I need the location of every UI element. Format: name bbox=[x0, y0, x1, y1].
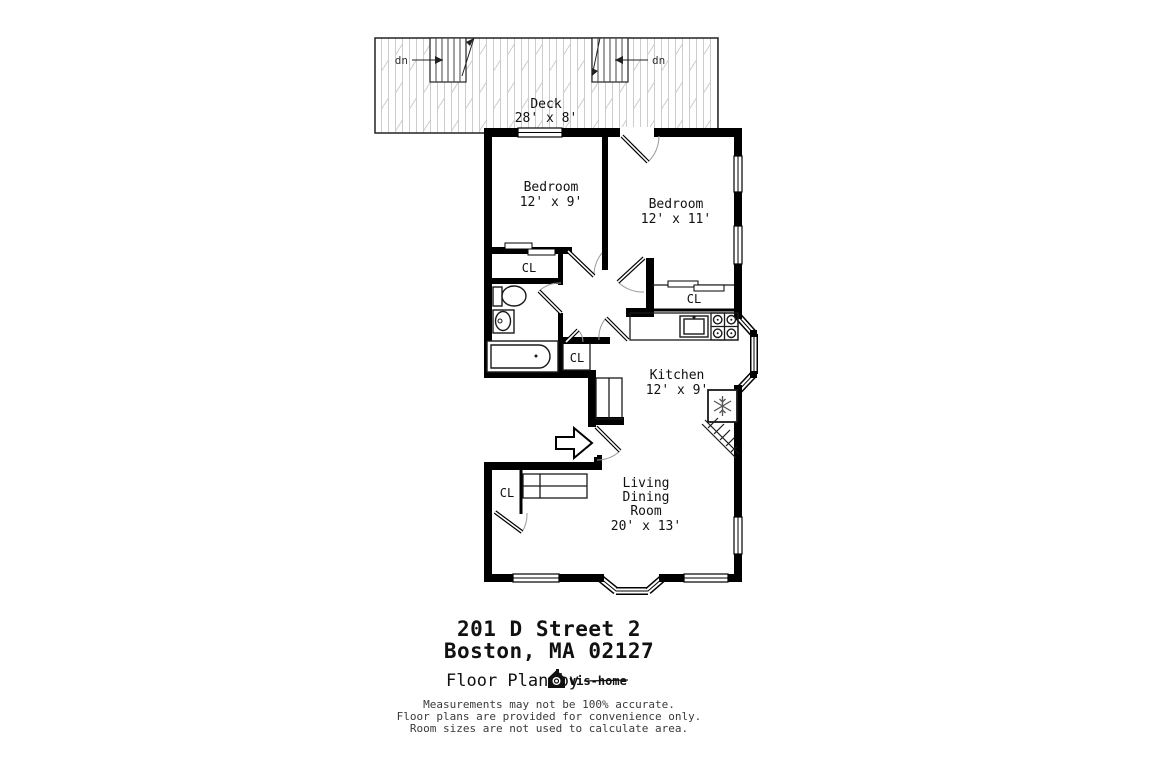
deck-door bbox=[620, 127, 659, 162]
floor-plan-canvas: dn dn Deck 28' x 8' bbox=[0, 0, 1152, 768]
deck: dn dn Deck 28' x 8' bbox=[375, 38, 718, 133]
bedroom1-window bbox=[518, 128, 562, 137]
deck-stairs-right-label: dn bbox=[652, 54, 665, 67]
bedroom2-label: Bedroom bbox=[649, 197, 704, 212]
bedroom1-dims: 12' x 9' bbox=[520, 195, 583, 210]
entry-arrow-icon bbox=[556, 428, 592, 458]
floor-plan-page: dn dn Deck 28' x 8' bbox=[0, 0, 1152, 768]
hall-closet-label: CL bbox=[570, 351, 584, 365]
deck-stairs-left-label: dn bbox=[395, 54, 408, 67]
living-label-1: Living bbox=[623, 476, 670, 491]
deck-dims: 28' x 8' bbox=[515, 111, 578, 126]
sink-icon bbox=[493, 310, 514, 333]
bedroom1-label: Bedroom bbox=[524, 180, 579, 195]
living-label-3: Room bbox=[630, 504, 661, 519]
living-window-bottom-left bbox=[513, 574, 559, 582]
living-closet-label: CL bbox=[500, 486, 514, 500]
kitchen-label: Kitchen bbox=[650, 368, 705, 383]
living-dims: 20' x 13' bbox=[611, 519, 681, 534]
stove-icon bbox=[711, 313, 738, 340]
bedroom2-dims: 12' x 11' bbox=[641, 212, 711, 227]
interior-stairs-icon bbox=[702, 418, 739, 458]
living-storage bbox=[523, 474, 587, 498]
bedroom2-closet-label: CL bbox=[687, 292, 701, 306]
living-bay-window bbox=[596, 574, 667, 591]
kitchen-dims: 12' x 9' bbox=[646, 383, 709, 398]
living-window-right bbox=[734, 517, 742, 554]
bath-closet-label: CL bbox=[522, 261, 536, 275]
footer: 201 D Street 2 Boston, MA 02127 Floor Pl… bbox=[397, 617, 702, 735]
address-line-1: 201 D Street 2 bbox=[457, 617, 641, 641]
bedroom1-door bbox=[568, 251, 602, 276]
living-label-2: Dining bbox=[623, 490, 670, 505]
bedroom2-door bbox=[618, 258, 644, 292]
bathroom-door bbox=[539, 283, 561, 313]
toilet-icon bbox=[493, 286, 526, 306]
living-window-bottom-right bbox=[684, 574, 728, 582]
deck-label: Deck bbox=[530, 97, 561, 112]
address-line-2: Boston, MA 02127 bbox=[444, 639, 654, 663]
kitchen-passage-door bbox=[599, 318, 628, 340]
living-closet-door bbox=[495, 512, 527, 532]
bedroom2-window-lower bbox=[734, 226, 742, 264]
bedroom2-window-upper bbox=[734, 156, 742, 192]
kitchen-sink-icon bbox=[680, 315, 708, 337]
disclaimer-line-3: Room sizes are not used to calculate are… bbox=[410, 722, 688, 735]
bathtub-icon bbox=[487, 341, 558, 372]
refrigerator-icon bbox=[708, 390, 737, 422]
